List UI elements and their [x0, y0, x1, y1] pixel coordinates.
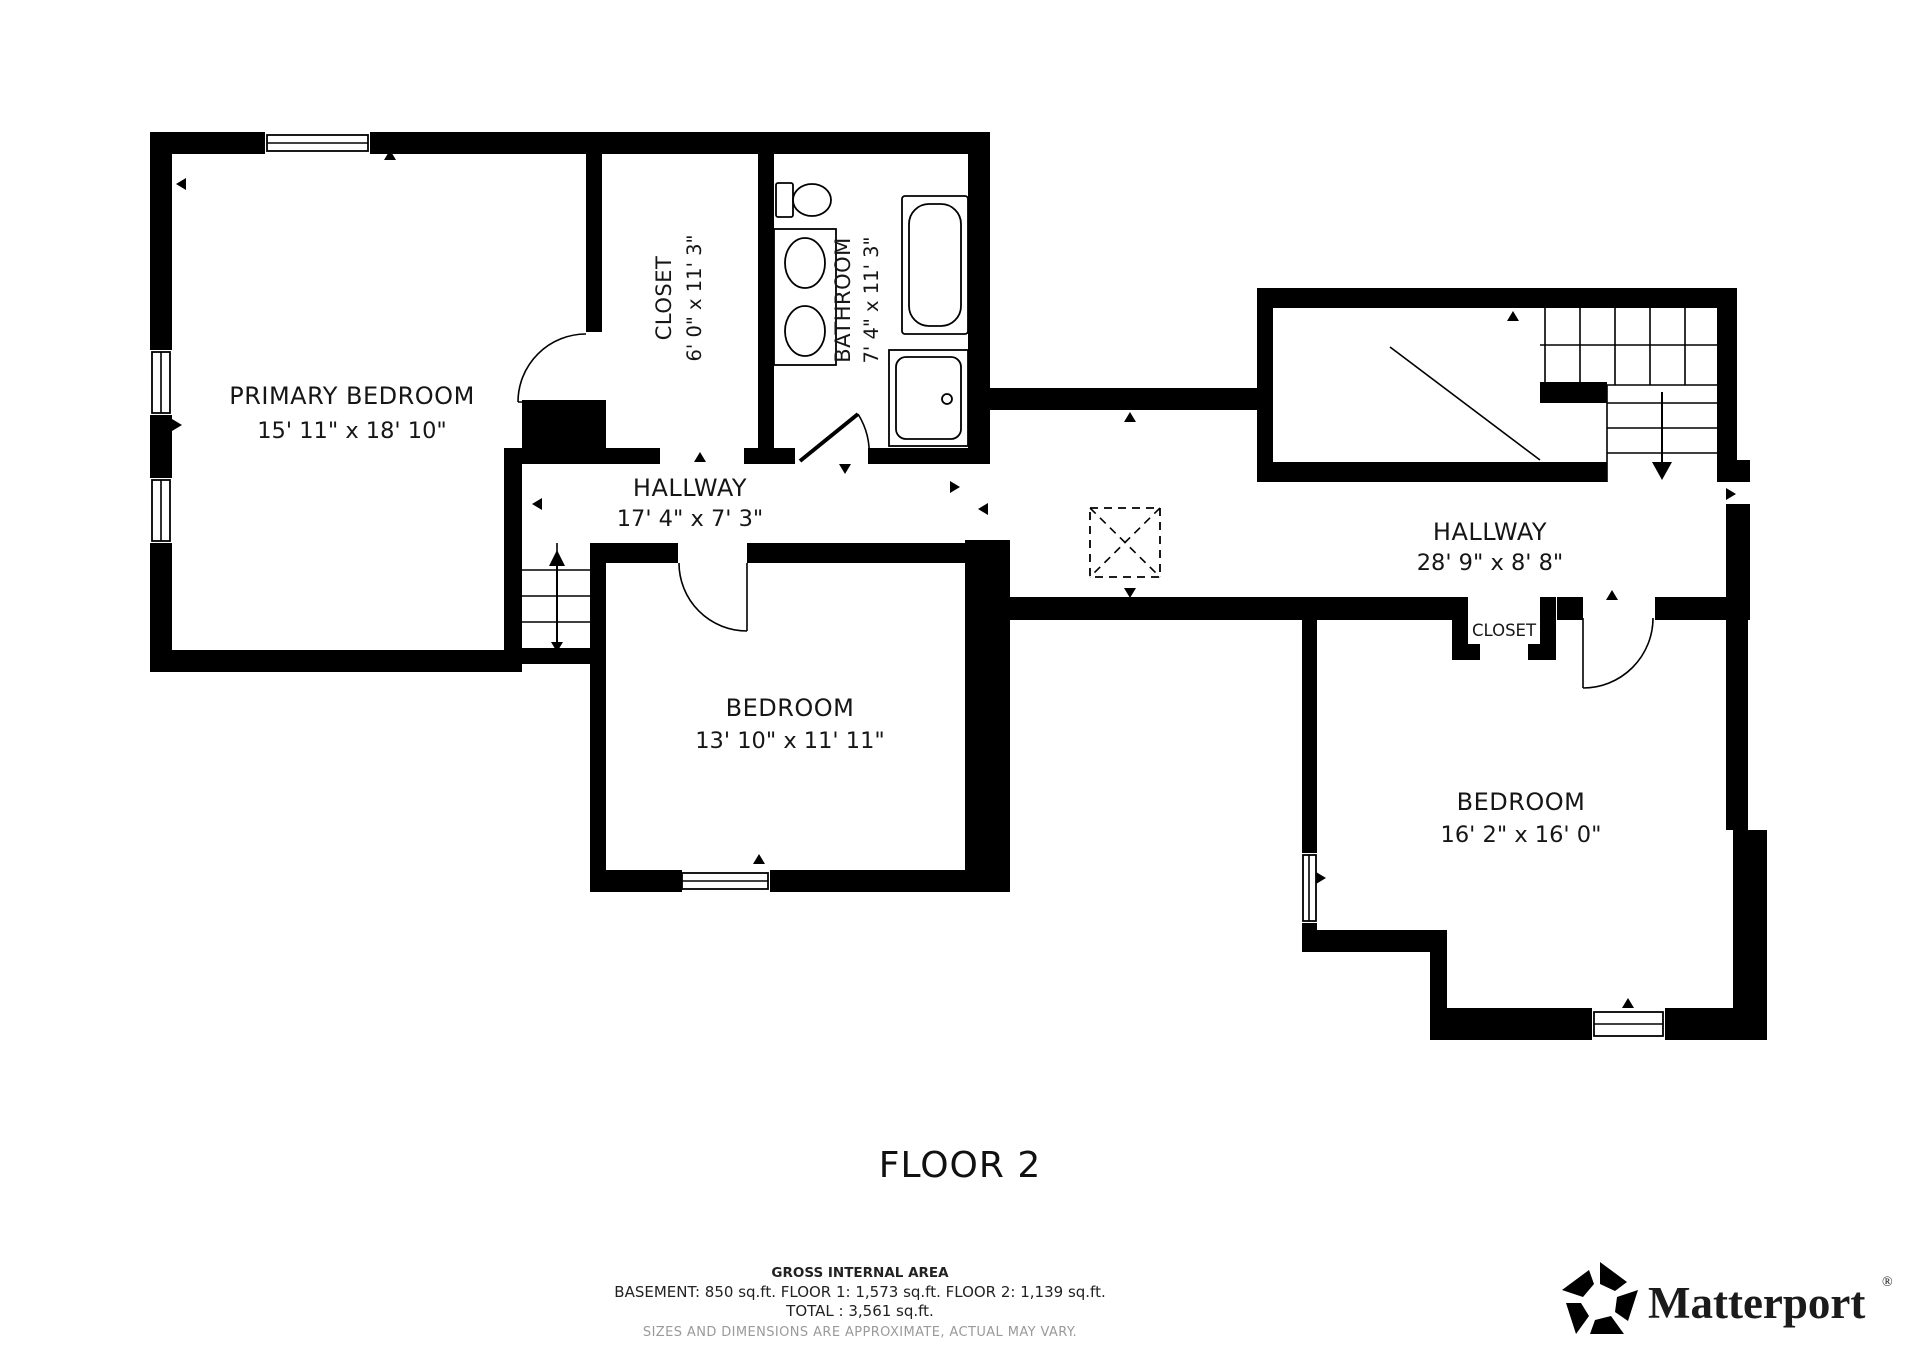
registered-mark: ®	[1882, 1275, 1893, 1290]
toilet	[776, 183, 831, 217]
floorplan-page: PRIMARY BEDROOM 15' 11" x 18' 10" CLOSET…	[0, 0, 1920, 1357]
bedroom-middle-dims: 13' 10" x 11' 11"	[695, 728, 885, 754]
floorplan-canvas: PRIMARY BEDROOM 15' 11" x 18' 10" CLOSET…	[0, 0, 1920, 1357]
hallway-right-dims: 28' 9" x 8' 8"	[1417, 550, 1564, 576]
window-bedroom-right-left	[1303, 855, 1316, 921]
stairs-up-arrow	[549, 550, 565, 652]
window-primary-left-lower	[152, 480, 170, 541]
hallway-left-label: HALLWAY	[633, 474, 747, 502]
bathtub	[902, 196, 968, 334]
bathroom-label: BATHROOM	[831, 237, 855, 363]
area-total: TOTAL : 3,561 sq.ft.	[785, 1302, 934, 1320]
vanity-double-sink	[774, 229, 836, 365]
hallway-left-dims: 17' 4" x 7' 3"	[617, 506, 764, 532]
stairs-down-arrow	[1652, 392, 1672, 480]
closet-top-dims: 6' 0" x 11' 3"	[683, 234, 706, 361]
window-bedroom-middle-bottom	[682, 873, 768, 889]
closet-top-label: CLOSET	[652, 256, 676, 341]
bedroom-middle-label: BEDROOM	[726, 694, 855, 722]
matterport-logo: Matterport ®	[1562, 1262, 1893, 1334]
stairs-left	[522, 543, 590, 652]
window-primary-top	[267, 135, 368, 151]
bathroom-label-group: BATHROOM 7' 4" x 11' 3"	[831, 236, 883, 363]
hallway-right-label: HALLWAY	[1433, 518, 1547, 546]
area-breakdown: BASEMENT: 850 sq.ft. FLOOR 1: 1,573 sq.f…	[614, 1283, 1105, 1301]
door-bedroom-right	[1583, 618, 1653, 688]
disclaimer: SIZES AND DIMENSIONS ARE APPROXIMATE, AC…	[643, 1325, 1077, 1340]
closet-right-label: CLOSET	[1472, 621, 1537, 640]
footer: GROSS INTERNAL AREA BASEMENT: 850 sq.ft.…	[614, 1265, 1105, 1340]
window-bedroom-right-bottom	[1594, 1012, 1663, 1036]
matterport-wordmark: Matterport	[1648, 1278, 1865, 1328]
gross-internal-area-title: GROSS INTERNAL AREA	[771, 1265, 949, 1281]
bedroom-right-dims: 16' 2" x 16' 0"	[1441, 822, 1602, 848]
primary-bedroom-label: PRIMARY BEDROOM	[229, 382, 475, 410]
skylight-dashed-box	[1090, 508, 1160, 577]
bedroom-right-label: BEDROOM	[1457, 788, 1586, 816]
closet-top-label-group: CLOSET 6' 0" x 11' 3"	[652, 234, 706, 361]
shower	[889, 350, 968, 446]
floor-title: FLOOR 2	[879, 1145, 1042, 1186]
window-primary-left-upper	[152, 352, 170, 413]
primary-bedroom-dims: 15' 11" x 18' 10"	[257, 418, 447, 444]
door-bedroom-middle	[679, 563, 747, 631]
matterport-mark-icon	[1562, 1262, 1638, 1334]
door-bathroom	[800, 414, 869, 461]
bathroom-dims: 7' 4" x 11' 3"	[860, 236, 883, 363]
door-primary-bedroom	[518, 334, 586, 402]
